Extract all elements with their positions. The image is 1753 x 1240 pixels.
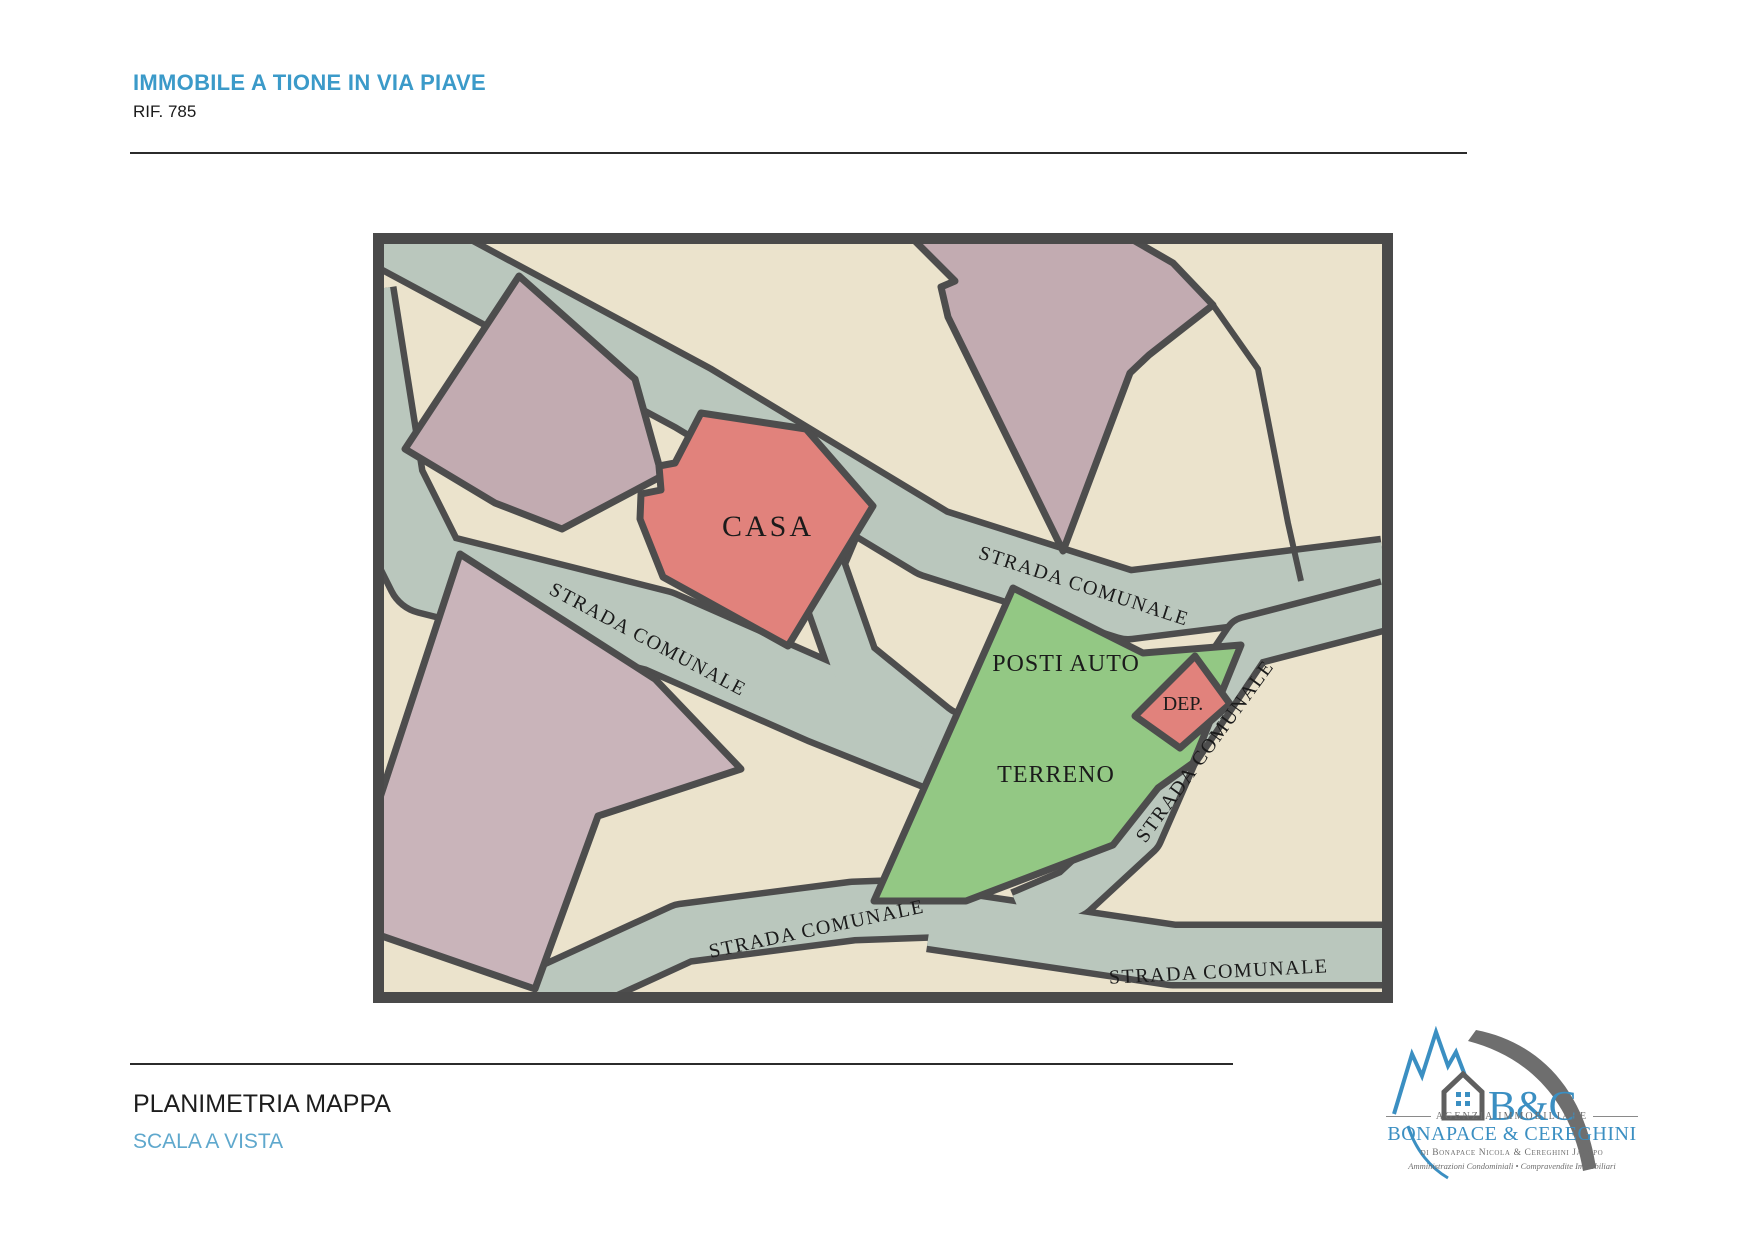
header-divider	[130, 152, 1467, 154]
agency-logo: B&C AGENZIA IMMOBILIARE BONAPACE & CEREG…	[1386, 1026, 1638, 1181]
logo-services: Amministrazioni Condominiali • Compraven…	[1386, 1161, 1638, 1171]
footer-caption: PLANIMETRIA MAPPA	[133, 1090, 391, 1119]
page-title: IMMOBILE A TIONE IN VIA PIAVE	[133, 70, 486, 96]
posti-auto-label: POSTI AUTO	[992, 651, 1140, 677]
cadastral-map-svg: CASA POSTI AUTO TERRENO DEP. STRADA COMU…	[373, 233, 1393, 1003]
casa-label: CASA	[722, 510, 814, 543]
dep-label: DEP.	[1163, 693, 1204, 715]
logo-tagline-text: AGENZIA IMMOBILIARE	[1436, 1111, 1588, 1122]
logo-text-block: AGENZIA IMMOBILIARE BONAPACE & CEREGHINI…	[1386, 1111, 1638, 1171]
logo-tagline: AGENZIA IMMOBILIARE	[1386, 1111, 1638, 1122]
reference-number: RIF. 785	[133, 102, 196, 122]
scale-note: SCALA A VISTA	[133, 1130, 283, 1154]
logo-owners: di Bonapace Nicola & Cereghini Jacopo	[1386, 1148, 1638, 1158]
logo-company-name: BONAPACE & CEREGHINI	[1386, 1123, 1638, 1146]
footer-divider	[130, 1063, 1233, 1065]
terreno-label: TERRENO	[997, 762, 1115, 788]
planimetry-map: CASA POSTI AUTO TERRENO DEP. STRADA COMU…	[373, 233, 1393, 1003]
